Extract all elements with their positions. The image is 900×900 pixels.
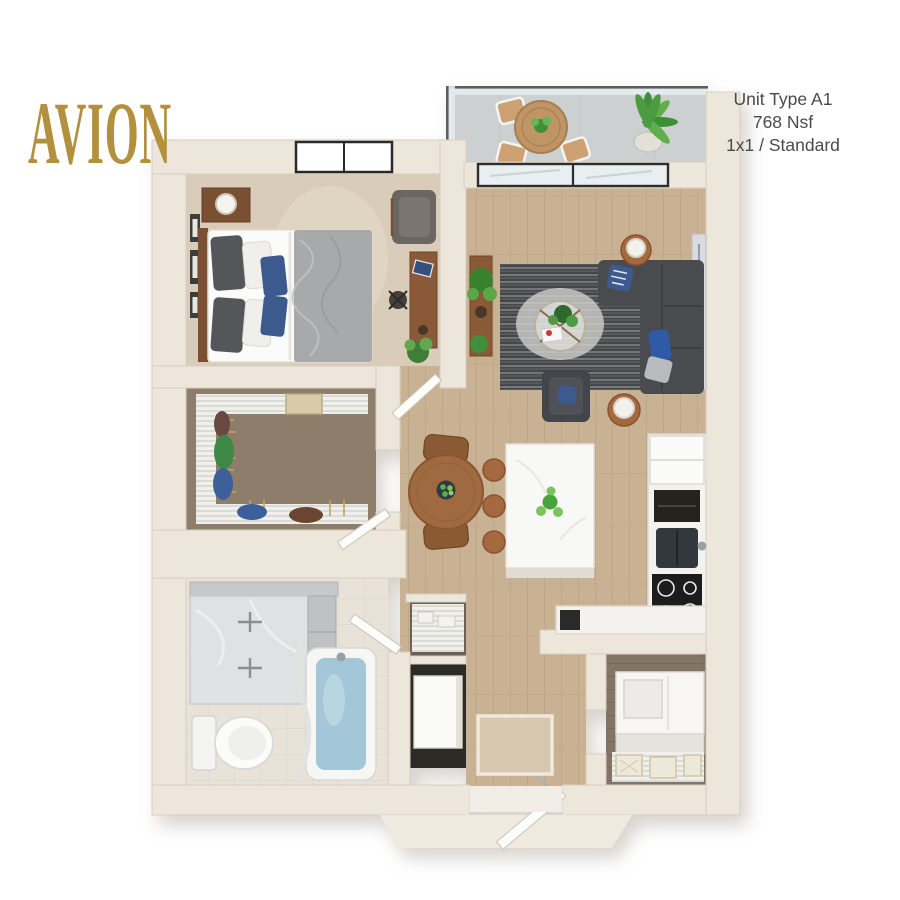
wall-bedroom-bottom	[152, 366, 400, 388]
bedroom-armchair	[392, 190, 436, 244]
accent-pillow	[260, 295, 288, 337]
unit-size-label: 768 Nsf	[688, 111, 878, 134]
wall-closet-right-upper	[376, 366, 400, 450]
bar-stool	[483, 531, 505, 553]
wall-bathroom-right	[388, 652, 410, 785]
tub-faucet-icon	[337, 653, 346, 662]
table-lamp-icon	[627, 239, 645, 257]
accent-chair	[542, 370, 590, 422]
magazine-icon	[541, 327, 563, 343]
fruit-bowl-icon	[437, 481, 456, 500]
pillow	[210, 297, 246, 353]
basket	[286, 394, 322, 414]
unit-config-label: 1x1 / Standard	[688, 134, 878, 157]
table-lamp-icon	[216, 194, 236, 214]
table-lamp-icon	[614, 398, 634, 418]
door-mat	[478, 716, 552, 774]
apartment-unit	[152, 86, 740, 849]
wall-laundry-left-upper	[586, 654, 606, 710]
vanity-upper-cabinet	[190, 582, 338, 596]
stacked-washer-dryer	[616, 672, 704, 754]
entry	[470, 716, 562, 812]
unit-type-label: Unit Type A1	[688, 88, 878, 111]
toilet	[192, 716, 273, 770]
wall-bottom-outer-right	[562, 785, 706, 815]
hanging-garment	[214, 435, 234, 469]
storage-basket	[650, 757, 676, 778]
door-threshold	[470, 786, 562, 812]
console-table-plant	[467, 256, 497, 356]
wall-left-outer	[152, 140, 186, 815]
hanging-garment	[289, 507, 323, 523]
floorplan-page: { "header": { "logo_text": "AVION", "uni…	[0, 0, 900, 900]
island-plant-icon	[543, 495, 558, 510]
accent-pillow	[260, 255, 288, 297]
laundry-storage	[612, 672, 704, 782]
wall-utility-top	[406, 594, 466, 602]
patterned-pillow	[557, 385, 578, 406]
unit-info-block: Unit Type A1 768 Nsf 1x1 / Standard	[688, 88, 878, 157]
storage-basket	[684, 755, 701, 776]
hanging-garment	[237, 504, 267, 520]
coffee-table	[535, 301, 585, 351]
wire-shelf	[196, 504, 368, 524]
bathtub	[306, 648, 376, 780]
bed	[198, 228, 372, 362]
counter-appliance	[560, 610, 580, 630]
hanging-garment	[213, 468, 233, 500]
floor-plant-icon	[470, 335, 488, 353]
sliding-glass-door	[478, 164, 668, 186]
hanging-garment	[214, 411, 230, 437]
wire-shelf	[412, 604, 464, 652]
wire-shelf	[196, 394, 368, 414]
bar-stool	[483, 459, 505, 481]
stored-box	[438, 616, 455, 627]
wall-bathroom-top	[152, 530, 406, 578]
wall-right-outer	[706, 92, 740, 815]
pillow	[210, 235, 246, 291]
utility-closet	[412, 604, 464, 748]
wall-laundry-left-lower	[586, 754, 606, 785]
water-heater	[414, 676, 462, 748]
faucet-icon	[698, 542, 707, 551]
stored-box	[418, 612, 433, 623]
wall-utility-divider	[410, 656, 466, 664]
wall-bedroom-living-divider	[440, 140, 466, 388]
bar-stool	[483, 495, 505, 517]
wall-bottom-outer-left	[152, 785, 470, 815]
brand-logo: AVION	[28, 84, 172, 185]
bedroom-window	[296, 142, 392, 172]
